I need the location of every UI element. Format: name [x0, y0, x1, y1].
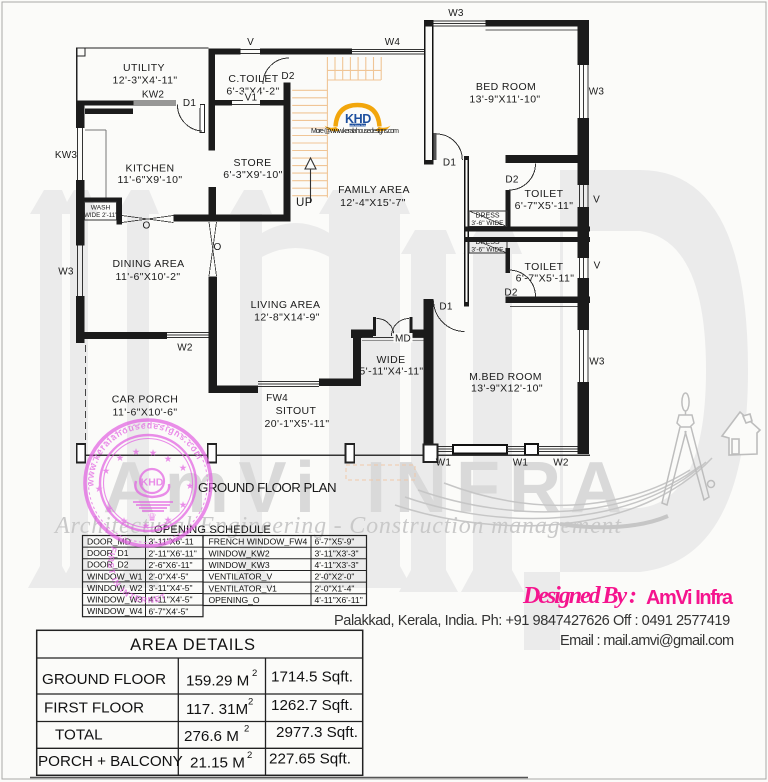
svg-text:W3: W3 [448, 8, 464, 19]
svg-text:WIDE 2'-11": WIDE 2'-11" [84, 212, 117, 219]
svg-text:6'-7"X5'-11": 6'-7"X5'-11" [516, 273, 575, 285]
svg-text:12'-8"X14'-9": 12'-8"X14'-9" [254, 312, 320, 324]
svg-text:20'-1"X5'-11": 20'-1"X5'-11" [265, 418, 330, 430]
svg-text:W2: W2 [177, 343, 193, 354]
svg-text:AREA DETAILS: AREA DETAILS [130, 636, 256, 654]
svg-text:O: O [143, 221, 151, 232]
svg-text:AmVi Infra: AmVi Infra [646, 587, 734, 609]
svg-text:V1: V1 [245, 93, 258, 104]
svg-text:3'-6" WIDE: 3'-6" WIDE [471, 220, 504, 227]
svg-text:★: ★ [179, 500, 188, 511]
svg-text:★: ★ [164, 515, 173, 526]
svg-text:W3: W3 [58, 267, 74, 278]
svg-text:11'-6"X9'-10": 11'-6"X9'-10" [118, 174, 183, 186]
svg-text:SITOUT: SITOUT [276, 405, 317, 417]
svg-text:UTILITY: UTILITY [123, 62, 165, 74]
svg-text:FW4: FW4 [266, 393, 288, 404]
svg-text:Kerala Home Design: Kerala Home Design [348, 124, 368, 127]
svg-text:2'-6"X6'-11": 2'-6"X6'-11" [149, 560, 193, 570]
svg-text:3'-6" WIDE: 3'-6" WIDE [471, 246, 504, 253]
svg-text:TOILET: TOILET [525, 188, 564, 200]
svg-text:MD: MD [395, 334, 411, 345]
svg-text:DRESS: DRESS [475, 213, 499, 220]
svg-text:★: ★ [116, 453, 125, 464]
svg-text:2'-0"X1'-4": 2'-0"X1'-4" [315, 583, 355, 593]
svg-text:2: 2 [247, 750, 252, 761]
svg-text:GROUND FLOOR PLAN: GROUND FLOOR PLAN [198, 480, 337, 495]
svg-text:13'-9"X12'-10": 13'-9"X12'-10" [471, 383, 543, 395]
svg-text:W1: W1 [436, 458, 452, 469]
svg-text:2: 2 [252, 668, 257, 679]
svg-text:276.6 M: 276.6 M [184, 728, 239, 745]
svg-text:KW3: KW3 [55, 150, 78, 161]
svg-text:21.15 M: 21.15 M [190, 755, 245, 772]
svg-text:FIRST FLOOR: FIRST FLOOR [44, 700, 144, 717]
svg-text:More @www.keralahousedesigns.c: More @www.keralahousedesigns.com [311, 128, 399, 135]
svg-text:★: ★ [95, 484, 104, 495]
svg-text:WINDOW_KW2: WINDOW_KW2 [209, 548, 270, 558]
svg-text:W2: W2 [553, 458, 569, 469]
svg-text:LIVING AREA: LIVING AREA [251, 299, 321, 311]
svg-text:TOTAL: TOTAL [55, 727, 103, 744]
svg-text:2'-0"X2'-0": 2'-0"X2'-0" [315, 572, 355, 582]
svg-text:TOILET: TOILET [525, 261, 564, 273]
svg-text:BED ROOM: BED ROOM [476, 81, 536, 93]
svg-text:159.29 M: 159.29 M [186, 673, 249, 690]
svg-text:Palakkad, Kerala, India. Ph:: Palakkad, Kerala, India. Ph: +91 9847427… [334, 613, 730, 629]
svg-text:2'-0"X4'-5": 2'-0"X4'-5" [149, 572, 189, 582]
svg-text:D1: D1 [439, 302, 452, 313]
svg-text:WASH: WASH [91, 205, 111, 212]
svg-text:2: 2 [248, 697, 253, 708]
svg-text:DINING AREA: DINING AREA [112, 258, 184, 270]
svg-text:FAMILY AREA: FAMILY AREA [338, 184, 410, 196]
svg-text:★: ★ [149, 448, 158, 459]
svg-text:11'-6"X10'-6": 11'-6"X10'-6" [113, 407, 178, 419]
svg-text:D2: D2 [504, 288, 517, 299]
svg-text:GROUND FLOOR: GROUND FLOOR [42, 671, 166, 688]
svg-text:13'-9"X11'-10": 13'-9"X11'-10" [469, 94, 540, 106]
svg-text:O: O [214, 242, 222, 253]
svg-text:5'-11"X4'-11": 5'-11"X4'-11" [359, 366, 423, 378]
svg-text:C.TOILET: C.TOILET [228, 73, 278, 85]
svg-text:UP: UP [296, 197, 313, 209]
svg-text:★: ★ [164, 454, 173, 465]
svg-text:6'-3"X9'-10": 6'-3"X9'-10" [223, 169, 282, 181]
svg-text:6'-7"X5'-9": 6'-7"X5'-9" [315, 537, 355, 547]
svg-text:1714.5 Sqft.: 1714.5 Sqft. [271, 669, 353, 686]
svg-text:D2: D2 [505, 175, 518, 186]
svg-text:★: ★ [132, 447, 141, 458]
svg-text:2977.3 Sqft.: 2977.3 Sqft. [276, 724, 358, 741]
svg-text:V: V [594, 261, 601, 272]
svg-text:FRENCH WINDOW_FW4: FRENCH WINDOW_FW4 [209, 537, 308, 547]
svg-text:★: ★ [105, 504, 114, 515]
svg-text:Email : mail.amvi@gmail.com: Email : mail.amvi@gmail.com [560, 633, 734, 649]
svg-text:★: ★ [102, 466, 111, 477]
svg-text:M.BED ROOM: M.BED ROOM [469, 371, 542, 383]
svg-text:2: 2 [244, 724, 249, 735]
svg-text:VENTILATOR_V1: VENTILATOR_V1 [209, 583, 278, 593]
svg-text:♛: ♛ [147, 512, 157, 524]
svg-text:227.65 Sqft.: 227.65 Sqft. [269, 751, 351, 768]
svg-text:117. 31M: 117. 31M [186, 701, 248, 718]
svg-text:★: ★ [120, 516, 129, 527]
svg-text:12'-3"X4'-11": 12'-3"X4'-11" [113, 75, 178, 87]
svg-text:D1: D1 [183, 98, 196, 109]
svg-text:W3: W3 [589, 87, 605, 98]
svg-text:W4: W4 [385, 37, 401, 48]
svg-text:4'-11"X6'-11": 4'-11"X6'-11" [315, 595, 363, 605]
svg-text:WIDE: WIDE [376, 354, 405, 366]
svg-text:3'-11"X4'-5": 3'-11"X4'-5" [149, 583, 193, 593]
svg-text:D2: D2 [281, 71, 294, 82]
svg-text:Designed By :: Designed By : [522, 583, 637, 609]
svg-text:11'-6"X10'-2": 11'-6"X10'-2" [116, 271, 181, 283]
svg-text:KITCHEN: KITCHEN [126, 163, 175, 175]
svg-text:V: V [593, 195, 600, 206]
svg-text:OPENING_O: OPENING_O [209, 595, 260, 605]
svg-text:6'-7"X4'-5": 6'-7"X4'-5" [149, 606, 189, 616]
svg-text:VENTILATOR_V: VENTILATOR_V [209, 572, 273, 582]
svg-text:DRESS: DRESS [475, 239, 499, 246]
svg-text:W3: W3 [589, 357, 605, 368]
svg-text:2'-11"X6'-11": 2'-11"X6'-11" [149, 548, 197, 558]
svg-text:STORE: STORE [234, 157, 272, 169]
svg-text:3'-11"X3'-3": 3'-11"X3'-3" [315, 548, 359, 558]
svg-text:6'-7"X5'-11": 6'-7"X5'-11" [515, 200, 574, 212]
svg-text:KHD: KHD [141, 477, 164, 489]
svg-text:KW2: KW2 [142, 90, 165, 101]
svg-text:WINDOW_KW3: WINDOW_KW3 [209, 560, 270, 570]
svg-text:W1: W1 [513, 458, 529, 469]
svg-text:★: ★ [179, 463, 188, 474]
svg-text:1262.7 Sqft.: 1262.7 Sqft. [271, 697, 353, 714]
svg-text:4'-11"X3'-3": 4'-11"X3'-3" [315, 560, 359, 570]
svg-text:PORCH + BALCONY: PORCH + BALCONY [38, 753, 183, 770]
svg-text:V: V [247, 37, 254, 48]
svg-text:D1: D1 [443, 158, 456, 169]
svg-text:WINDOW_W4: WINDOW_W4 [87, 606, 143, 616]
svg-text:12'-4"X15'-7": 12'-4"X15'-7" [340, 197, 406, 209]
svg-text:★: ★ [186, 481, 195, 492]
svg-text:CAR PORCH: CAR PORCH [112, 394, 179, 406]
